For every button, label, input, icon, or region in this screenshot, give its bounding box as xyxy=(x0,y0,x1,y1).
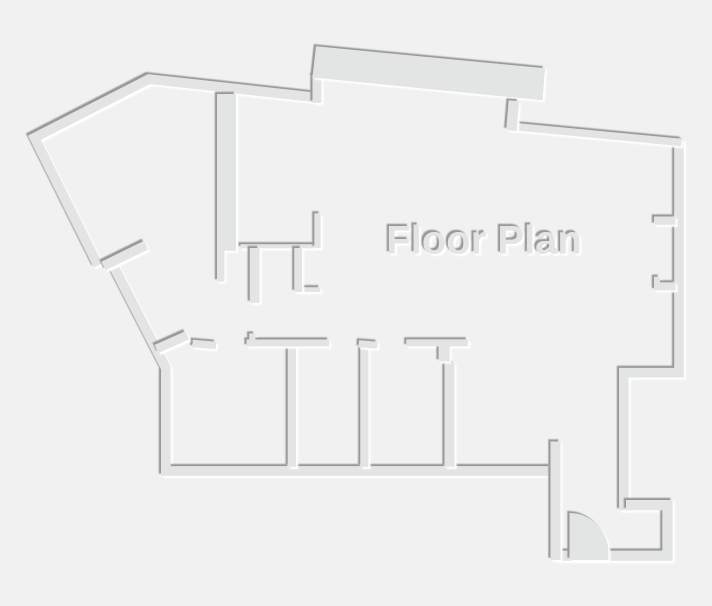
svg-text:Floor Plan: Floor Plan xyxy=(386,219,582,263)
